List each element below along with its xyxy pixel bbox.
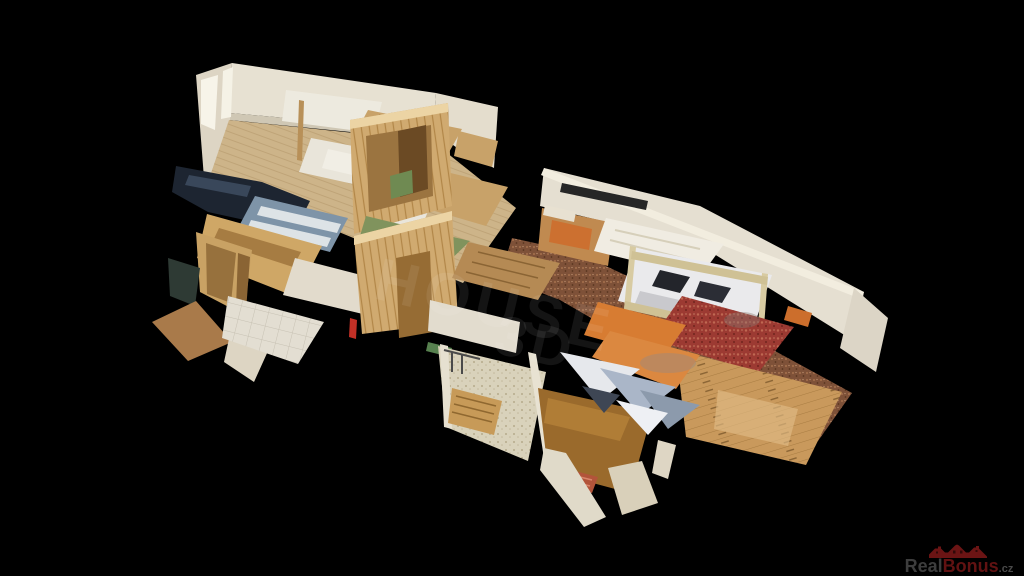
fire-extinguisher [349,318,357,339]
window-glow [201,75,218,130]
brand-suffix: Bonus [943,556,999,576]
realbonus-logo: RealBonus.cz [898,543,1020,575]
brand-wordmark: RealBonus.cz [898,557,1020,575]
brand-tld: .cz [999,563,1014,575]
tour-canvas[interactable]: HOUSE 3D RealBonus.cz [0,0,1024,576]
dollhouse-model[interactable]: HOUSE 3D [0,0,1024,576]
brand-prefix: Real [905,556,943,576]
